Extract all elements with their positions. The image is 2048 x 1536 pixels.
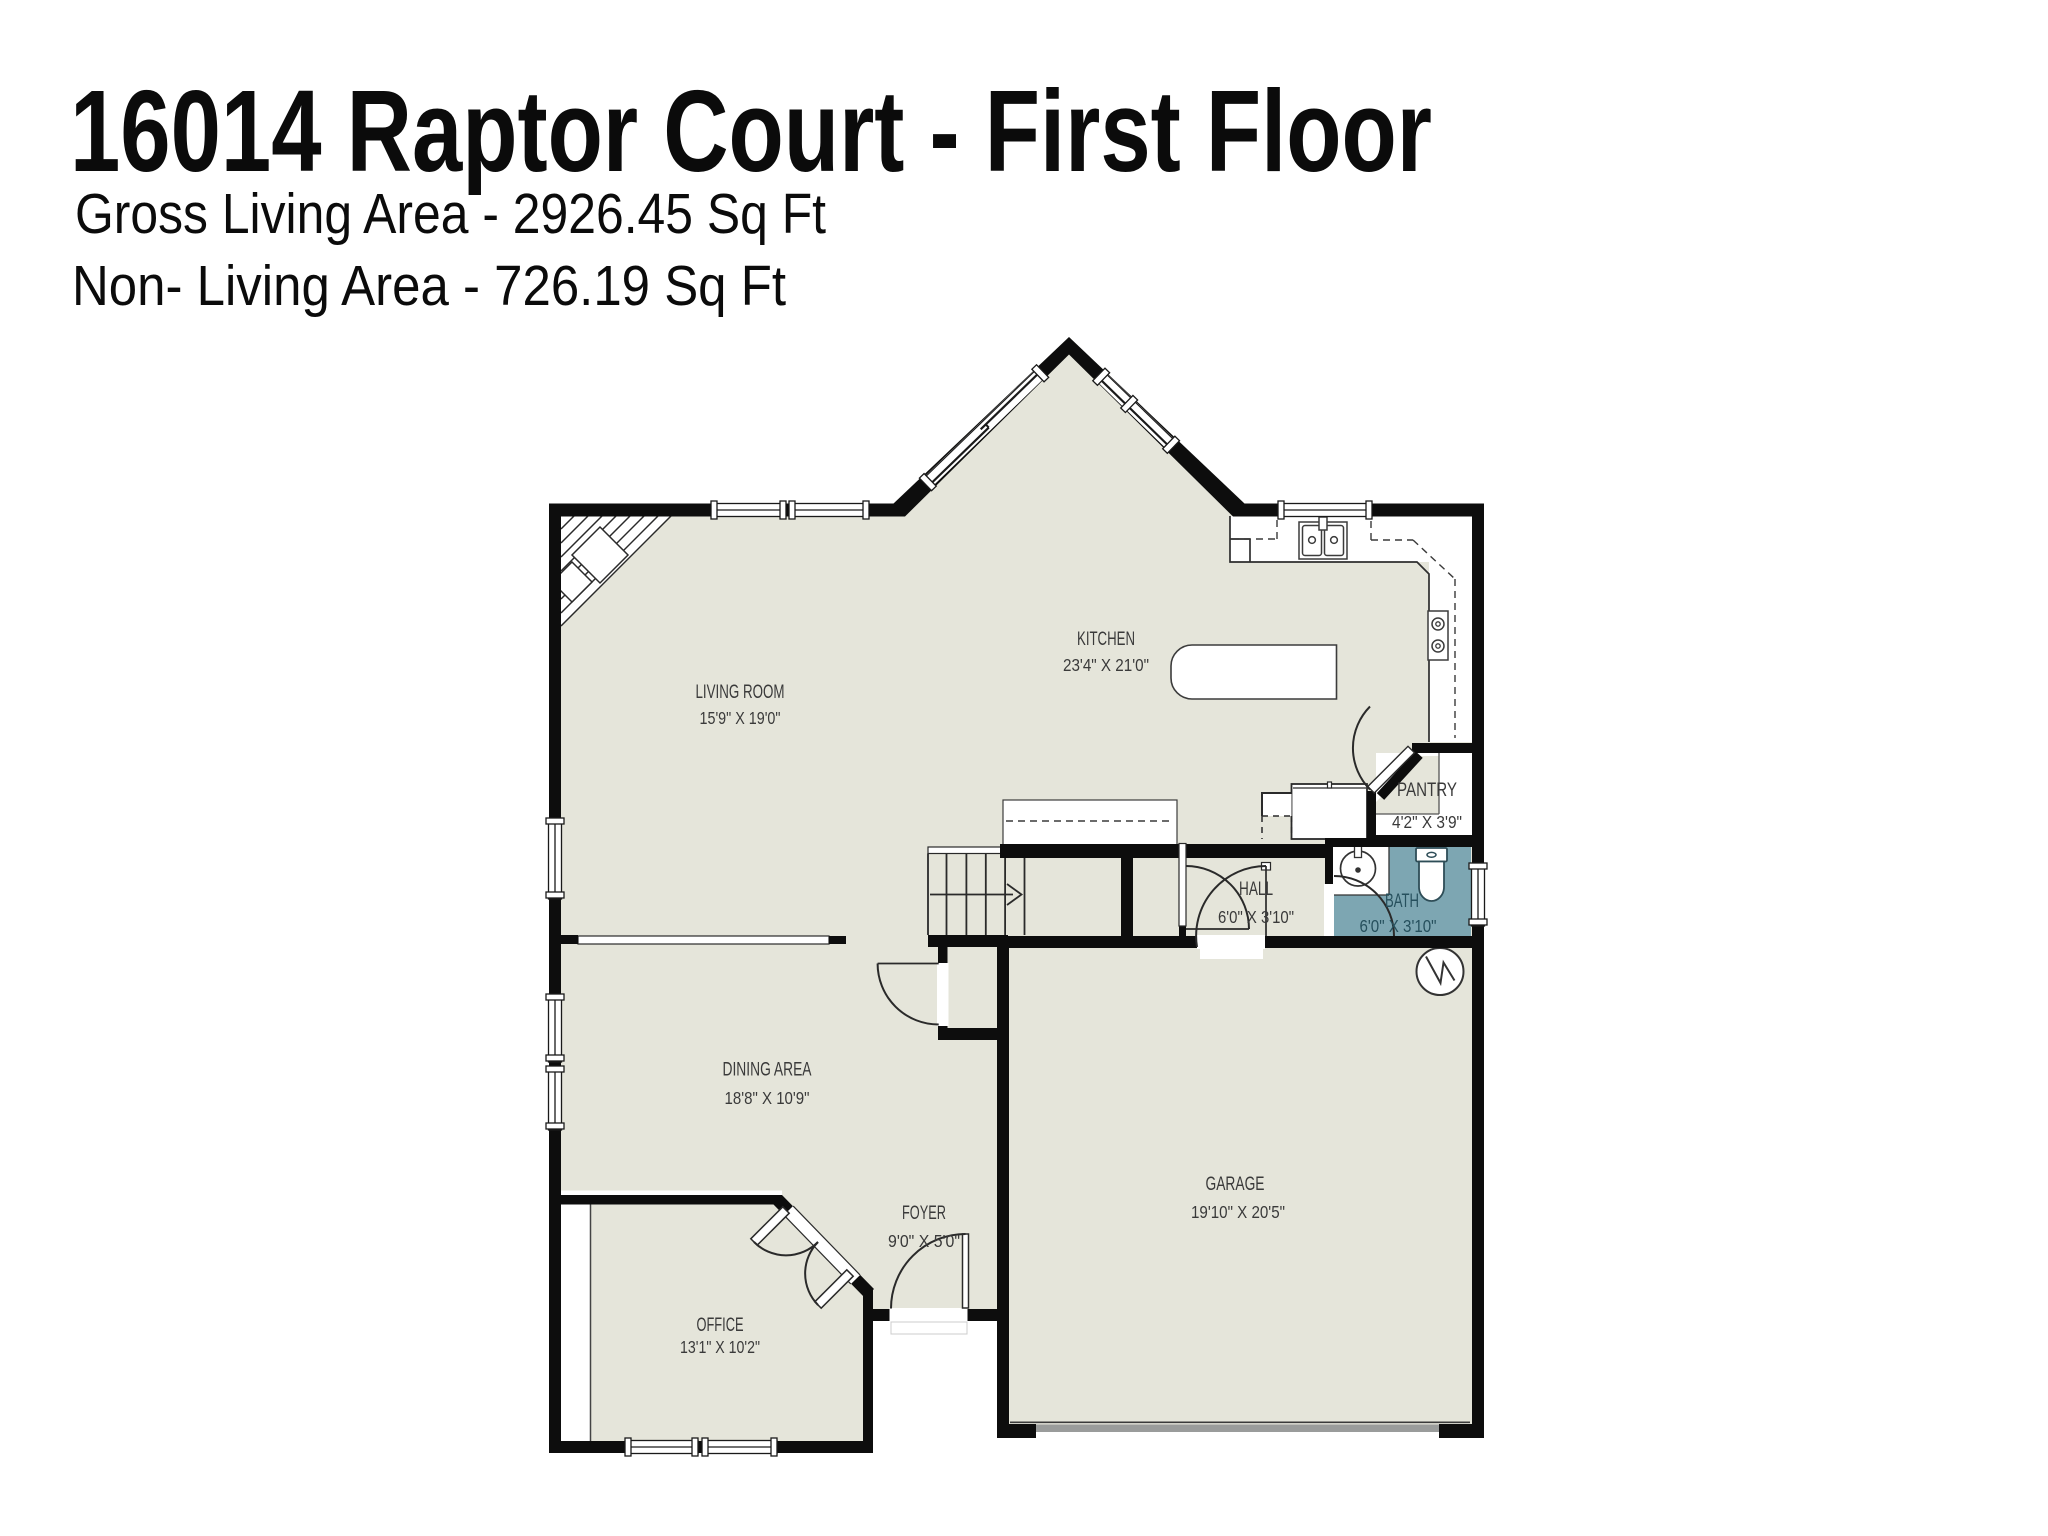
svg-text:Gross Living Area - 2926.45 Sq: Gross Living Area - 2926.45 Sq Ft [75,182,826,246]
svg-text:15'9" X 19'0": 15'9" X 19'0" [700,708,781,728]
svg-text:HALL: HALL [1239,879,1273,900]
svg-text:19'10" X 20'5": 19'10" X 20'5" [1191,1202,1285,1222]
svg-text:4'2" X 3'9": 4'2" X 3'9" [1392,812,1462,832]
svg-text:OFFICE: OFFICE [697,1315,744,1336]
svg-text:LIVING ROOM: LIVING ROOM [696,682,785,703]
svg-text:23'4" X 21'0": 23'4" X 21'0" [1063,655,1149,675]
svg-text:6'0" X 3'10": 6'0" X 3'10" [1360,916,1437,936]
svg-text:16014 Raptor Court - First Flo: 16014 Raptor Court - First Floor [70,66,1432,196]
svg-text:GARAGE: GARAGE [1206,1174,1265,1195]
svg-text:BATH: BATH [1385,891,1419,912]
svg-text:KITCHEN: KITCHEN [1077,629,1135,650]
svg-text:18'8" X 10'9": 18'8" X 10'9" [725,1088,810,1108]
svg-text:Non- Living Area - 726.19 Sq F: Non- Living Area - 726.19 Sq Ft [72,254,786,318]
svg-text:PANTRY: PANTRY [1397,780,1457,801]
svg-text:13'1" X 10'2": 13'1" X 10'2" [680,1337,760,1357]
svg-text:FOYER: FOYER [902,1203,946,1224]
svg-text:6'0" X 3'10": 6'0" X 3'10" [1218,907,1294,927]
svg-text:9'0" X 5'0": 9'0" X 5'0" [888,1231,960,1251]
svg-text:DINING AREA: DINING AREA [723,1060,812,1081]
